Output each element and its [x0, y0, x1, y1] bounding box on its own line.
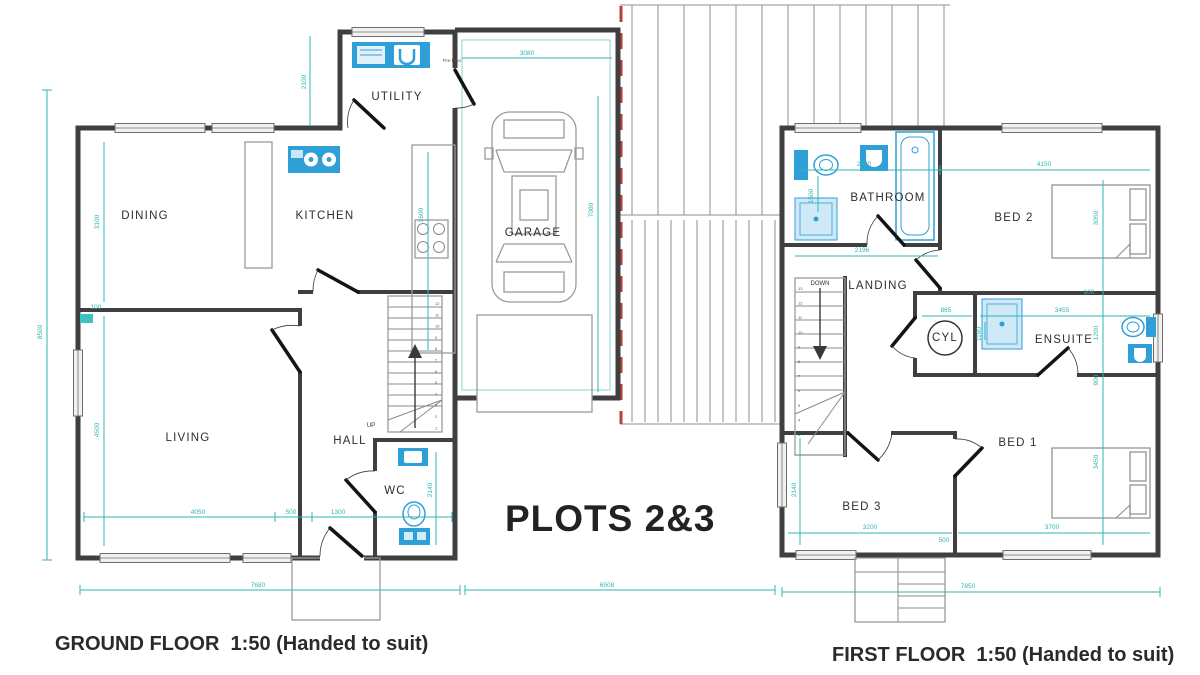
- kitchen-sink: [288, 146, 340, 173]
- cylinder-cupboard: CYL: [928, 321, 962, 355]
- dim-bath-length: 1500: [808, 188, 815, 203]
- room-label-bathroom: BATHROOM: [850, 192, 925, 204]
- dim-living-width: 4050: [191, 509, 206, 516]
- ensuite-toilet: [1122, 317, 1156, 337]
- dim-front-overall: 7680: [251, 582, 266, 589]
- fire-door-note: Fire Door: [443, 58, 462, 63]
- room-label-dining: DINING: [121, 210, 168, 222]
- stair-step-number: 13: [798, 286, 803, 291]
- dim-side-overall: 8500: [37, 324, 44, 339]
- dim-wc-depth: 2140: [427, 482, 434, 497]
- dim-garage-width: 3080: [520, 50, 535, 57]
- room-label-utility: UTILITY: [371, 91, 422, 103]
- bed2-furniture: [1052, 185, 1150, 258]
- floor-plan-page: 121110987654321: [0, 0, 1200, 675]
- dim-hall-b: 1300: [331, 509, 346, 516]
- room-label-bed1: BED 1: [998, 437, 1037, 449]
- utility-sink: [352, 42, 430, 68]
- ground-floor-caption: GROUND FLOOR 1:50 (Handed to suit): [55, 633, 428, 656]
- stairs-down-label: DOWN: [811, 281, 830, 287]
- dim-bed3-depth: 2140: [791, 482, 798, 497]
- bathroom-bath: [896, 132, 934, 240]
- dim-bed2-depth: 3050: [1093, 210, 1100, 225]
- stair-step-number: 10: [798, 330, 803, 335]
- room-label-bed2: BED 2: [994, 212, 1033, 224]
- dim-cyl-width: 865: [941, 307, 952, 314]
- dim-ensuite-depth: 1180: [976, 327, 983, 341]
- front-porch: [292, 558, 380, 620]
- ground-outer-walls: [78, 32, 455, 558]
- dim-link-overall: 6508: [600, 582, 615, 589]
- first-floor-caption: FIRST FLOOR 1:50 (Handed to suit): [832, 644, 1174, 667]
- room-label-wc: WC: [384, 485, 406, 497]
- ensuite-shower: [982, 299, 1022, 349]
- ensuite-basin: [1128, 344, 1152, 363]
- dim-wall: 100: [91, 304, 102, 311]
- room-label-landing: LANDING: [848, 280, 908, 292]
- dim-bed2-width: 4150: [1037, 161, 1052, 168]
- dim-garage-depth: 7080: [588, 202, 595, 217]
- stairs-up-label: UP: [367, 423, 375, 429]
- dim-bathroom-width: 2080: [857, 161, 872, 168]
- stair-step-number: 12: [435, 301, 440, 306]
- wc-basin: [398, 448, 428, 466]
- dim-ensuite-d2: 1200: [1093, 325, 1100, 340]
- dim-kitchen-run: 2600: [418, 207, 425, 222]
- dim-hall-a: 500: [286, 509, 297, 516]
- dim-living-depth: 4500: [94, 422, 101, 437]
- room-label-garage: GARAGE: [505, 227, 561, 239]
- dim-bed3-width: 3200: [863, 524, 878, 531]
- dim-bathroom-length: 2196: [855, 247, 870, 254]
- bed1-furniture: [1052, 448, 1150, 518]
- room-label-kitchen: KITCHEN: [296, 210, 355, 222]
- room-label-living: LIVING: [166, 432, 211, 444]
- radiator-marker: [80, 314, 93, 323]
- stair-step-number: 10: [435, 324, 440, 329]
- dim-dining-depth: 3100: [94, 214, 101, 229]
- room-label-ensuite: ENSUITE: [1035, 334, 1093, 346]
- dim-ensuite-width: 3455: [1055, 307, 1070, 314]
- first-floor-plan: CYL: [778, 124, 1163, 623]
- dim-bed1-width: 3700: [1045, 524, 1060, 531]
- floor-plan-drawing: 121110987654321: [0, 0, 1200, 675]
- dim-wall-first: 100: [1084, 289, 1095, 296]
- dim-bed1-depth: 3450: [1093, 454, 1100, 469]
- bathroom-shower: [795, 198, 837, 240]
- room-label-cyl: CYL: [932, 332, 958, 344]
- page-title: PLOTS 2&3: [505, 498, 716, 540]
- room-label-bed3: BED 3: [842, 501, 881, 513]
- dim-500: 500: [939, 537, 950, 544]
- room-label-hall: HALL: [333, 435, 367, 447]
- dim-utility-depth: 2100: [301, 74, 308, 89]
- dim-first-front-overall: 7850: [961, 583, 976, 590]
- external-stair-outline: [855, 558, 945, 622]
- stair-step-number: 12: [798, 301, 803, 306]
- dim-900: 900: [1093, 374, 1100, 385]
